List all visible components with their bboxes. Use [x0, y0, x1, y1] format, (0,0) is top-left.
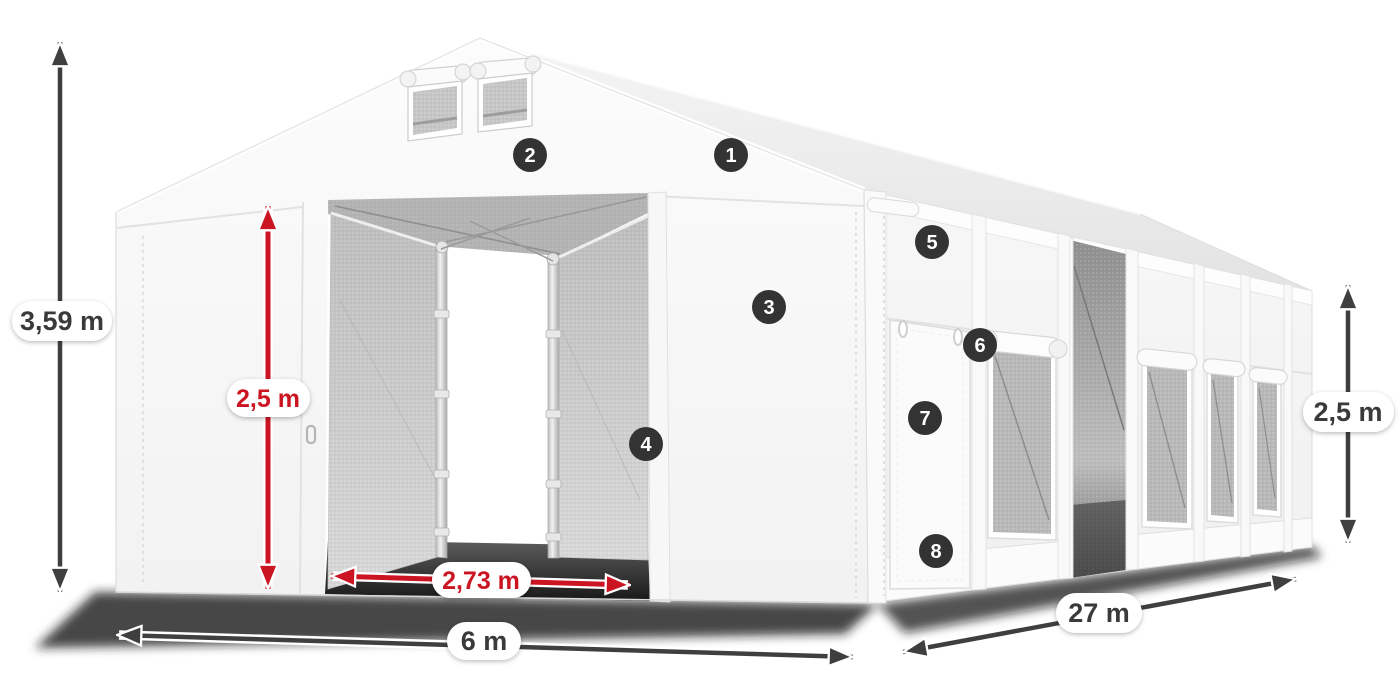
callout-2-number: 2	[524, 145, 535, 167]
callout-6: 6	[963, 328, 997, 362]
mesh-door-left	[328, 213, 449, 589]
callout-6-number: 6	[974, 335, 985, 357]
tent-illustration: 3,59 m 2,5 m 2,73 m 6 m 27 m 2,5 m 1	[0, 0, 1400, 700]
entrance-height-label: 2,5 m	[227, 379, 310, 417]
callout-7-number: 7	[919, 408, 930, 430]
total-height-label: 3,59 m	[12, 301, 112, 341]
side-window-1	[979, 330, 1067, 540]
door-pole	[436, 245, 447, 558]
tent-width-value: 6 m	[461, 626, 508, 656]
entrance-right-jamb	[648, 192, 670, 602]
callout-4-number: 4	[640, 434, 652, 456]
entrance-height-value: 2,5 m	[236, 385, 300, 413]
entrance-width-label: 2,73 m	[432, 562, 531, 598]
callout-7: 7	[908, 401, 942, 435]
callout-3: 3	[752, 290, 786, 324]
callout-8-number: 8	[930, 541, 941, 563]
tent-length-label: 27 m	[1056, 593, 1142, 633]
front-entrance-opening	[325, 193, 650, 601]
callout-5: 5	[915, 225, 949, 259]
door-pole	[548, 258, 559, 558]
roof-vent-window-1	[400, 64, 471, 141]
callout-1-number: 1	[725, 145, 736, 167]
callout-2: 2	[513, 138, 547, 172]
callout-5-number: 5	[926, 232, 937, 254]
door-hook	[954, 329, 962, 345]
tent-length-value: 27 m	[1068, 598, 1130, 628]
side-height-value: 2,5 m	[1313, 397, 1382, 427]
side-height-label: 2,5 m	[1303, 392, 1394, 432]
entrance-width-value: 2,73 m	[442, 567, 520, 595]
door-hook	[899, 321, 907, 337]
callout-3-number: 3	[763, 297, 774, 319]
callout-8: 8	[919, 534, 953, 568]
callout-4: 4	[629, 427, 663, 461]
callout-1: 1	[714, 138, 748, 172]
tent-dimensions-diagram: 3,59 m 2,5 m 2,73 m 6 m 27 m 2,5 m 1	[0, 0, 1400, 700]
mesh-door-right	[546, 216, 648, 560]
side-open-doorway	[1062, 236, 1126, 579]
total-height-value: 3,59 m	[20, 306, 104, 336]
tent-width-label: 6 m	[447, 622, 521, 660]
roof-vent-window-2	[470, 56, 541, 132]
side-window-2	[1136, 348, 1197, 529]
